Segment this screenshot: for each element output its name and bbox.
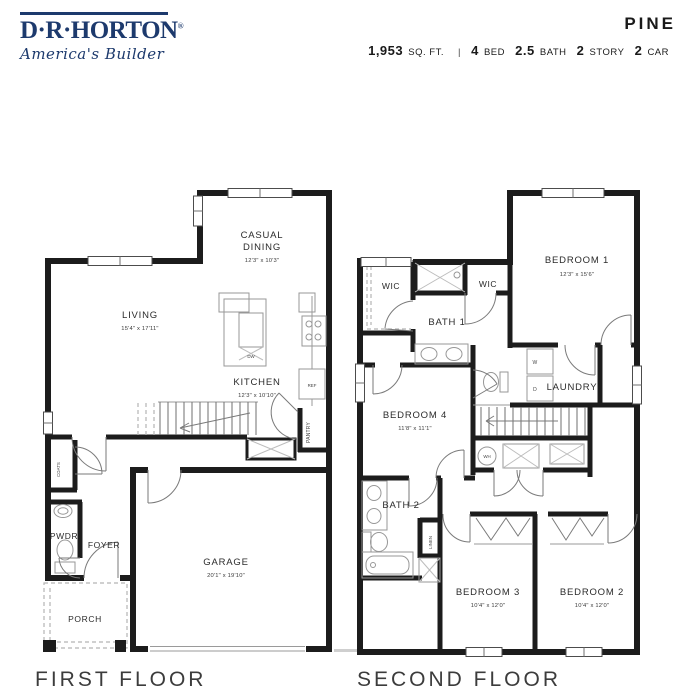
kitchen-island [224,299,266,366]
sf-door-bath1 [373,365,402,394]
ff-door-garage [148,470,181,503]
label-ref: REF [308,383,317,388]
room-label-pwdr: PWDR [50,531,78,541]
room-dims-kitchen: 12'3" x 10'10" [238,393,276,399]
second-floor-plan: BEDROOM 1 12'3" x 15'6" WIC WIC BATH 1 L… [356,189,642,692]
room-label-wic-left: WIC [382,281,400,291]
label-dw: DW [247,354,255,359]
floorplan-sheet: D·R·HORTON® America's Builder PINE 1,953… [0,0,695,696]
sf-door-wic-left [385,301,413,331]
room-label-bath2: BATH 2 [382,500,419,511]
pwdr-sink [54,505,72,518]
room-label-laundry: LAUNDRY [547,382,598,393]
room-label-bedroom3: BEDROOM 3 [456,587,520,598]
sf-door-bedroom3 [443,514,470,542]
room-dims-bedroom2: 10'4" x 12'0" [575,603,609,609]
floorplan-drawing: LIVING 15'4" x 17'11" CASUAL DINING 12'3… [0,0,695,696]
stove [302,316,326,346]
second-floor-title: SECOND FLOOR [357,668,561,691]
label-dryer: D [533,387,537,393]
room-label-casual: CASUAL [241,230,284,241]
room-label-foyer: FOYER [88,540,120,550]
room-label-pantry: PANTRY [306,422,312,443]
pwdr-sink-basin [58,508,68,514]
sf-door-wic-right [465,293,496,324]
sf-door-bedroom1 [601,315,631,345]
garage-door [150,647,305,652]
room-label-dining: DINING [243,242,281,253]
room-dims-bedroom1: 12'3" x 15'6" [560,272,594,278]
room-dims-dining: 12'3" x 10'3" [245,258,279,264]
bath1-vanity [415,344,468,364]
room-label-bedroom2: BEDROOM 2 [560,587,624,598]
attic-chase-x [550,444,584,464]
wc-toilet-tank [500,372,508,392]
bath2-tub-basin [366,556,409,574]
first-floor-title: FIRST FLOOR [35,668,206,691]
room-label-bedroom1: BEDROOM 1 [545,255,609,266]
sf-door-laundry [565,345,595,375]
porch-post [43,640,56,652]
label-washer: W [533,360,538,366]
ff-interior-walls [48,408,329,558]
porch-post [115,640,126,652]
room-dims-living: 15'4" x 17'11" [121,326,158,332]
ff-stairs-treads [160,402,256,435]
room-label-coats: COATS [56,462,61,477]
label-water-heater: WH [483,454,490,459]
room-label-bath1: BATH 1 [428,317,465,328]
room-label-living: LIVING [122,310,158,321]
bath1-sink [421,348,437,361]
room-label-wic-right: WIC [479,279,497,289]
room-label-bedroom4: BEDROOM 4 [383,410,447,421]
room-label-kitchen: KITCHEN [233,377,280,388]
washer [527,349,553,374]
bedroom2-closet-bifold [552,518,604,540]
burner-icon [315,334,321,340]
room-dims-bedroom4: 11'8" x 11'1" [398,426,432,432]
bath2-sink [367,486,381,501]
tub-drain-icon [371,563,376,568]
burner-icon [315,321,321,327]
dishwasher [239,313,263,347]
room-label-porch: PORCH [68,614,102,624]
room-dims-bedroom3: 10'4" x 12'0" [471,603,505,609]
mech-chase-x [503,444,539,468]
sf-door-bedroom4 [436,450,464,478]
wic-shelf-dashed [367,266,411,329]
sf-door-wc [473,370,497,398]
ff-cabinet [299,293,315,312]
room-label-garage: GARAGE [203,557,248,568]
sf-door-bedroom2 [608,514,637,543]
sf-double-doors-hall-closet [494,470,543,496]
bath2-sink [367,509,381,524]
burner-icon [306,321,312,327]
bath2-toilet-tank [362,532,371,552]
ff-understair-x [247,439,295,459]
room-dims-garage: 20'1" x 19'10" [207,573,245,579]
shower-head-icon [454,272,460,278]
bedroom3-closet-bifold [476,518,530,540]
pwdr-toilet-bowl [57,540,73,560]
burner-icon [306,334,312,340]
bath1-sink [446,348,462,361]
ff-door-pantry [271,393,298,439]
room-label-linen: LINEN [428,536,433,549]
linen-chase-x [419,558,440,582]
bath2-toilet-bowl [371,533,388,552]
ff-stairs-treads-dashed [138,403,154,435]
